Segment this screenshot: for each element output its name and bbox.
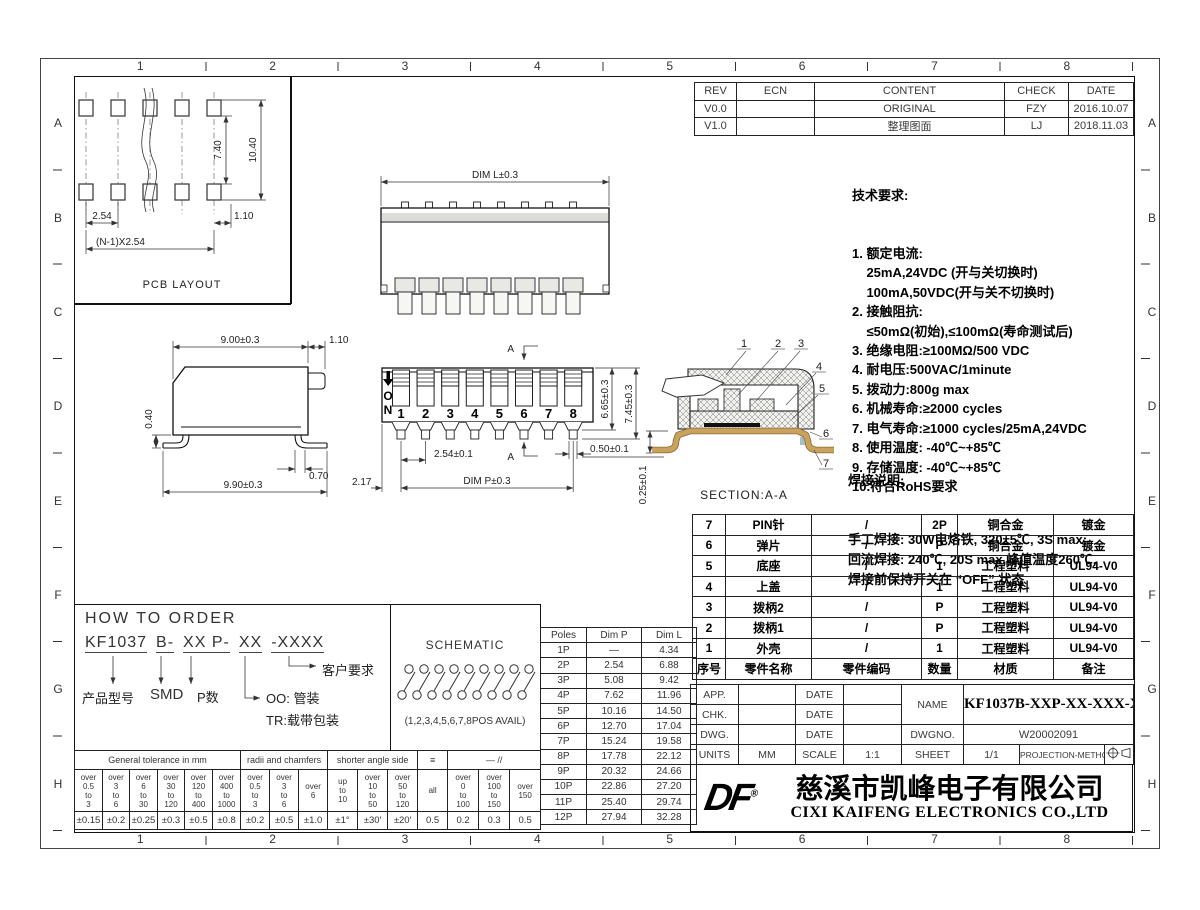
grid-row-label: C: [42, 265, 74, 359]
poles-header-row: PolesDim PDim L: [541, 628, 697, 643]
projection-label: PROJECTION-METHOD: [1020, 745, 1105, 765]
parallel-symbol: — //: [448, 751, 541, 770]
bom-note: UL94-V0: [1054, 597, 1134, 618]
revision-header-cell: DATE: [1069, 83, 1134, 101]
dim-0-25: 0.25±0.1: [638, 465, 649, 504]
dim-l-cell: 9.42: [642, 673, 697, 688]
grid-rows-left: ABCDEFGH: [42, 76, 74, 831]
dim-9-90: 9.90±0.3: [224, 480, 263, 491]
date-label: DATE: [796, 725, 844, 745]
grid-row-label: B: [42, 170, 74, 264]
bom-row: 2 拨柄1 / P 工程塑料 UL94-V0: [693, 617, 1134, 638]
company-block: DF® 慈溪市凯峰电子有限公司 CIXI KAIFENG ELECTRONICS…: [690, 764, 1133, 832]
bom-note: 镀金: [1054, 515, 1134, 536]
dim-0-70: 0.70: [309, 471, 329, 482]
bom-part-code: /: [812, 576, 922, 597]
dim-0-50: 0.50±0.1: [590, 444, 629, 455]
grid-row-label: C: [1136, 265, 1168, 359]
poles-cell: 8P: [541, 749, 587, 764]
tech-line: ≤50mΩ(初始),≤100mΩ(寿命测试后): [852, 322, 1136, 341]
svg-text:3: 3: [798, 338, 804, 350]
svg-text:7: 7: [545, 406, 552, 421]
grid-row-label: D: [42, 359, 74, 453]
grid-col-label: 8: [1001, 59, 1133, 75]
revision-header-cell: REV: [695, 83, 737, 101]
bom-index: 1: [693, 638, 726, 659]
section-slider: [724, 389, 740, 411]
tol-group-angle: shorter angle side: [328, 751, 418, 770]
revision-header-cell: CHECK: [1005, 83, 1069, 101]
dim-p-cell: 7.62: [587, 688, 642, 703]
section-marker-a-bottom: A: [507, 452, 514, 463]
bom-index: 4: [693, 576, 726, 597]
dim-l-cell: 4.34: [642, 643, 697, 658]
dim-p-cell: 27.94: [587, 810, 642, 825]
svg-text:6: 6: [823, 428, 829, 440]
bom-row: 7 PIN针 / 2P 铜合金 镀金: [693, 515, 1134, 536]
company-logo: DF®: [701, 777, 761, 820]
bom-part-code: /: [812, 515, 922, 536]
bom-header-cell: 备注: [1054, 659, 1134, 680]
check-cell: LJ: [1005, 118, 1069, 136]
svg-text:8: 8: [570, 406, 577, 421]
bom-part-code: /: [812, 617, 922, 638]
tol-value-cell: ±0.2: [103, 812, 130, 830]
dim-l-cell: 17.04: [642, 719, 697, 734]
scale-label: SCALE: [796, 745, 844, 765]
tolerance-group-row: General tolerance in mm radii and chamfe…: [75, 751, 541, 770]
grid-col-label: 1: [74, 832, 206, 848]
company-names: 慈溪市凯峰电子有限公司 CIXI KAIFENG ELECTRONICS CO.…: [767, 774, 1132, 822]
bom-header-cell: 序号: [693, 659, 726, 680]
bom-index: 7: [693, 515, 726, 536]
poles-cell: 4P: [541, 688, 587, 703]
dim-p-cell: 20.32: [587, 764, 642, 779]
bom-material: 工程塑料: [958, 556, 1054, 577]
units-label: UNITS: [691, 745, 739, 765]
tol-range-cell: over 400 to 1000: [213, 770, 241, 812]
tol-range-cell: over 3 to 6: [270, 770, 299, 812]
app-value: [739, 685, 796, 705]
bom-material: 工程塑料: [958, 638, 1054, 659]
chk-value: [739, 705, 796, 725]
tech-line: 6. 机械寿命:≥2000 cycles: [852, 399, 1136, 418]
tol-range-cell: over 120 to 400: [185, 770, 213, 812]
dim-2-54: 2.54: [92, 211, 112, 222]
grid-row-label: F: [42, 548, 74, 642]
tol-range-cell: over 50 to 120: [388, 770, 418, 812]
bom-rows: 7 PIN针 / 2P 铜合金 镀金 6 弹片 / P 铜合金 镀金 5 底座 …: [693, 515, 1134, 659]
top-view-stub-right: [603, 285, 609, 292]
poles-row: 7P 15.24 19.58: [541, 734, 697, 749]
svg-text:1: 1: [741, 338, 747, 350]
svg-text:2: 2: [422, 406, 429, 421]
revision-rows: V0.0 ORIGINAL FZY 2016.10.07 V1.0 整理图面 L…: [695, 100, 1134, 135]
revision-header-row: REVECNCONTENTCHECKDATE: [695, 83, 1134, 101]
part-name-value: KF1037B-XXP-XX-XXX-XXX: [964, 685, 1134, 725]
tech-line: 100mA,50VDC(开与关不切换时): [852, 283, 1136, 302]
grid-col-label: 4: [471, 59, 603, 75]
bom-note: UL94-V0: [1054, 617, 1134, 638]
scale-value: 1:1: [844, 745, 902, 765]
poles-row: 12P 27.94 32.28: [541, 810, 697, 825]
tol-value-cell: ±30′: [358, 812, 388, 830]
pcb-layout-view: 7.40 10.40 2.54 1.10 (N-1)X2.54 PCB LAYO…: [74, 76, 291, 304]
rev-cell: V0.0: [695, 100, 737, 118]
bom-qty: 1: [922, 556, 958, 577]
top-view-stub-left: [381, 285, 387, 292]
poles-cell: 12P: [541, 810, 587, 825]
bom-material: 工程塑料: [958, 617, 1054, 638]
front-view-pins: [392, 422, 582, 439]
revision-row: V1.0 整理图面 LJ 2018.11.03: [695, 118, 1134, 136]
dim-1-10-side: 1.10: [329, 335, 349, 346]
projection-method-icon: [1106, 746, 1132, 760]
poles-header-cell: Dim L: [642, 628, 697, 643]
app-label: APP.: [691, 685, 739, 705]
bom-note: 镀金: [1054, 535, 1134, 556]
dim-6-65: 6.65±0.3: [600, 379, 611, 418]
svg-text:5: 5: [819, 383, 825, 395]
flatness-symbol: ≡: [418, 751, 448, 770]
bom-part-code: /: [812, 535, 922, 556]
dim-l-cell: 27.20: [642, 779, 697, 794]
tol-value-cell: 0.5: [510, 812, 541, 830]
grid-col-label: 2: [206, 832, 338, 848]
bom-header-cell: 数量: [922, 659, 958, 680]
poles-row: 5P 10.16 14.50: [541, 703, 697, 718]
bom-part-code: /: [812, 556, 922, 577]
revision-header-cell: ECN: [737, 83, 815, 101]
pcb-layout-label: PCB LAYOUT: [143, 279, 222, 291]
bom-material: 铜合金: [958, 535, 1054, 556]
tol-range-cell: over 0.5 to 3: [241, 770, 270, 812]
tol-value-cell: 0.2: [448, 812, 479, 830]
dim-l-cell: 14.50: [642, 703, 697, 718]
grid-col-label: 5: [604, 59, 736, 75]
tech-line: 5. 拨动力:800g max: [852, 380, 1136, 399]
tol-range-cell: all: [418, 770, 448, 812]
poles-row: 6P 12.70 17.04: [541, 719, 697, 734]
top-view: DIM L±0.3: [365, 166, 627, 334]
bom-row: 1 外壳 / 1 工程塑料 UL94-V0: [693, 638, 1134, 659]
poles-row: 8P 17.78 22.12: [541, 749, 697, 764]
dim-l-cell: 19.58: [642, 734, 697, 749]
pcb-dimensions: 7.40 10.40 2.54 1.10 (N-1)X2.54: [86, 100, 266, 254]
top-view-tabs: [402, 202, 577, 208]
svg-text:4: 4: [471, 406, 479, 421]
grid-row-label: B: [1136, 170, 1168, 264]
bom-part-name: 弹片: [726, 535, 812, 556]
grid-col-label: 2: [206, 59, 338, 75]
poles-table: PolesDim PDim L 1P — 4.34 2P 2.54 6.88 3…: [540, 627, 697, 825]
tolerance-range-row: over 0.5 to 3over 3 to 6over 6 to 30over…: [75, 770, 541, 812]
grid-col-label: 3: [339, 59, 471, 75]
projection-symbol-cell: [1105, 745, 1134, 765]
bom-part-name: 上盖: [726, 576, 812, 597]
dim-l-cell: 22.12: [642, 749, 697, 764]
poles-header-cell: Poles: [541, 628, 587, 643]
check-cell: FZY: [1005, 100, 1069, 118]
tolerance-value-row: ±0.15±0.2±0.25±0.3±0.5±0.8±0.2±0.5±1.0±1…: [75, 812, 541, 830]
bom-index: 5: [693, 556, 726, 577]
dim-l-cell: 11.96: [642, 688, 697, 703]
grid-col-label: 6: [736, 59, 868, 75]
bom-qty: P: [922, 535, 958, 556]
front-view-body: [382, 368, 593, 422]
bom-qty: P: [922, 597, 958, 618]
dim-p-cell: —: [587, 643, 642, 658]
date-label: DATE: [796, 705, 844, 725]
poles-cell: 7P: [541, 734, 587, 749]
date-cell: 2018.11.03: [1069, 118, 1134, 136]
name-label: NAME: [902, 685, 964, 725]
dim-2-17: 2.17: [352, 477, 372, 488]
sheet-label: SHEET: [902, 745, 964, 765]
order-label-pnum: P数: [197, 687, 219, 706]
grid-row-label: D: [1136, 359, 1168, 453]
bom-header-cell: 零件名称: [726, 659, 812, 680]
registered-mark: ®: [750, 788, 759, 799]
dim-l-cell: 29.74: [642, 795, 697, 810]
bom-material: 铜合金: [958, 515, 1054, 536]
engineering-drawing-sheet: 12345678 12345678 ABCDEFGH ABCDEFGH 7.40…: [0, 0, 1200, 910]
poles-cell: 11P: [541, 795, 587, 810]
bom-table: 7 PIN针 / 2P 铜合金 镀金 6 弹片 / P 铜合金 镀金 5 底座 …: [692, 514, 1134, 680]
company-logo-text: DF: [701, 777, 753, 819]
dim-p-cell: 5.08: [587, 673, 642, 688]
svg-text:5: 5: [496, 406, 503, 421]
grid-col-label: 4: [471, 832, 603, 848]
grid-row-label: G: [42, 642, 74, 736]
front-view: O N 1 2 3 4 5 6 7 8 A A 6.65±0.3 7.45±0.…: [350, 338, 680, 510]
section-block-left: [698, 399, 718, 411]
bom-part-code: /: [812, 638, 922, 659]
bom-part-name: 底座: [726, 556, 812, 577]
units-value: MM: [739, 745, 796, 765]
dim-l-cell: 32.28: [642, 810, 697, 825]
tech-title: 技术要求:: [852, 186, 1136, 205]
tol-range-cell: over 30 to 120: [158, 770, 185, 812]
revision-header-cell: CONTENT: [815, 83, 1005, 101]
svg-text:4: 4: [816, 361, 822, 373]
dim-2-54-pitch: 2.54±0.1: [434, 449, 473, 460]
dim-n-pitch: (N-1)X2.54: [96, 237, 145, 248]
bom-index: 2: [693, 617, 726, 638]
tol-range-cell: over 0.5 to 3: [75, 770, 103, 812]
dim-p-cell: 22.86: [587, 779, 642, 794]
date-label: DATE: [796, 685, 844, 705]
tol-value-cell: ±1.0: [299, 812, 328, 830]
grid-row-label: E: [1136, 454, 1168, 548]
section-view: 1 2 3 4 5 6 7 0.25±0.1 SECTION:A-A: [638, 333, 850, 519]
top-view-pins: [395, 278, 583, 314]
tol-range-cell: over 0 to 100: [448, 770, 479, 812]
bom-header-cell: 零件编码: [812, 659, 922, 680]
dim-9-00: 9.00±0.3: [221, 335, 260, 346]
title-block: APP. DATE NAME KF1037B-XXP-XX-XXX-XXX CH…: [690, 684, 1134, 765]
tol-value-cell: ±1°: [328, 812, 358, 830]
grid-row-label: F: [1136, 548, 1168, 642]
section-contact: [704, 423, 760, 427]
tol-value-cell: ±0.15: [75, 812, 103, 830]
bom-qty: 2P: [922, 515, 958, 536]
tol-range-cell: over 100 to 150: [479, 770, 510, 812]
dim-p-cell: 2.54: [587, 658, 642, 673]
grid-col-label: 8: [1001, 832, 1133, 848]
bom-row: 5 底座 / 1 工程塑料 UL94-V0: [693, 556, 1134, 577]
tech-line: 4. 耐电压:500VAC/1minute: [852, 360, 1136, 379]
front-switch-numbers: 1 2 3 4 5 6 7 8: [397, 406, 576, 421]
order-label-tube: OO: 管装: [266, 688, 319, 707]
ecn-cell: [737, 118, 815, 136]
bom-part-code: /: [812, 597, 922, 618]
tech-line: 25mA,24VDC (开与关切换时): [852, 263, 1136, 282]
chk-label: CHK.: [691, 705, 739, 725]
poles-row: 1P — 4.34: [541, 643, 697, 658]
grid-row-label: E: [42, 454, 74, 548]
content-cell: 整理图面: [815, 118, 1005, 136]
order-label-smd: SMD: [150, 686, 183, 703]
chk-date-value: [844, 705, 902, 725]
grid-col-label: 5: [604, 832, 736, 848]
poles-cell: 9P: [541, 764, 587, 779]
dwg-date-value: [844, 725, 902, 745]
grid-row-label: A: [1136, 76, 1168, 170]
bom-note: UL94-V0: [1054, 638, 1134, 659]
grid-cols-bottom: 12345678: [74, 832, 1133, 848]
poles-header-cell: Dim P: [587, 628, 642, 643]
tol-value-cell: 0.5: [418, 812, 448, 830]
poles-row: 2P 2.54 6.88: [541, 658, 697, 673]
poles-cell: 3P: [541, 673, 587, 688]
dim-l: DIM L±0.3: [472, 170, 518, 181]
bom-index: 6: [693, 535, 726, 556]
svg-text:3: 3: [447, 406, 454, 421]
dim-p-cell: 17.78: [587, 749, 642, 764]
poles-row: 9P 20.32 24.66: [541, 764, 697, 779]
grid-col-label: 7: [868, 59, 1000, 75]
dim-0-40: 0.40: [144, 409, 155, 429]
solder-title: 焊接说明:: [848, 471, 1138, 491]
svg-text:1: 1: [397, 406, 404, 421]
dim-10-40: 10.40: [248, 137, 259, 162]
dim-l-cell: 24.66: [642, 764, 697, 779]
tol-value-cell: ±20′: [388, 812, 418, 830]
dim-p-cell: 15.24: [587, 734, 642, 749]
order-label-tr: TR:载带包装: [266, 710, 339, 729]
dwg-label: DWG.: [691, 725, 739, 745]
grid-col-label: 6: [736, 832, 868, 848]
bom-header-row: 序号零件名称零件编码数量材质备注: [693, 659, 1134, 680]
sheet-value: 1/1: [964, 745, 1020, 765]
tol-range-cell: over 10 to 50: [358, 770, 388, 812]
rev-cell: V1.0: [695, 118, 737, 136]
bom-row: 6 弹片 / P 铜合金 镀金: [693, 535, 1134, 556]
grid-col-label: 1: [74, 59, 206, 75]
poles-cell: 2P: [541, 658, 587, 673]
poles-row: 10P 22.86 27.20: [541, 779, 697, 794]
bom-part-name: 外壳: [726, 638, 812, 659]
revision-table: REVECNCONTENTCHECKDATE V0.0 ORIGINAL FZY…: [694, 82, 1134, 136]
bom-part-name: 拨柄1: [726, 617, 812, 638]
bom-note: UL94-V0: [1054, 556, 1134, 577]
tol-value-cell: ±0.3: [158, 812, 185, 830]
dim-p-cell: 10.16: [587, 703, 642, 718]
on-down-arrow-icon: [383, 371, 394, 386]
tol-range-cell: up to 10: [328, 770, 358, 812]
top-view-band: [382, 213, 608, 221]
tol-value-cell: ±0.25: [130, 812, 158, 830]
schematic-title: SCHEMATIC: [390, 638, 540, 652]
dim-1-10: 1.10: [234, 211, 254, 222]
tol-group-general: General tolerance in mm: [75, 751, 241, 770]
poles-cell: 1P: [541, 643, 587, 658]
bom-row: 4 上盖 / 1 工程塑料 UL94-V0: [693, 576, 1134, 597]
dim-p-cell: 12.70: [587, 719, 642, 734]
poles-row: 3P 5.08 9.42: [541, 673, 697, 688]
bom-index: 3: [693, 597, 726, 618]
poles-row: 11P 25.40 29.74: [541, 795, 697, 810]
bom-part-name: 拨柄2: [726, 597, 812, 618]
front-view-slots: [393, 370, 582, 406]
dwgno-value: W20002091: [964, 725, 1134, 745]
svg-text:2: 2: [775, 338, 781, 350]
tol-range-cell: over 6 to 30: [130, 770, 158, 812]
on-letter-n: N: [384, 403, 393, 417]
bom-note: UL94-V0: [1054, 576, 1134, 597]
bom-material: 工程塑料: [958, 597, 1054, 618]
grid-cols-top: 12345678: [74, 59, 1133, 75]
bom-part-name: PIN针: [726, 515, 812, 536]
content-cell: ORIGINAL: [815, 100, 1005, 118]
ecn-cell: [737, 100, 815, 118]
poles-row: 4P 7.62 11.96: [541, 688, 697, 703]
svg-text:6: 6: [520, 406, 527, 421]
grid-col-label: 7: [868, 832, 1000, 848]
dim-7-40: 7.40: [213, 140, 224, 160]
bom-row: 3 拨柄2 / P 工程塑料 UL94-V0: [693, 597, 1134, 618]
order-label-model: 产品型号: [82, 688, 134, 707]
poles-cell: 5P: [541, 703, 587, 718]
company-name-en: CIXI KAIFENG ELECTRONICS CO.,LTD: [767, 804, 1132, 822]
date-cell: 2016.10.07: [1069, 100, 1134, 118]
tech-line: 1. 额定电流:: [852, 244, 1136, 263]
dwg-value: [739, 725, 796, 745]
side-view-body: [173, 367, 308, 435]
bom-material: 工程塑料: [958, 576, 1054, 597]
tolerance-table: General tolerance in mm radii and chamfe…: [74, 750, 541, 830]
app-date-value: [844, 685, 902, 705]
bom-qty: 1: [922, 638, 958, 659]
grid-row-label: H: [42, 737, 74, 831]
bom-qty: 1: [922, 576, 958, 597]
dim-7-45: 7.45±0.3: [624, 384, 635, 423]
tol-value-cell: ±0.5: [185, 812, 213, 830]
section-label: SECTION:A-A: [700, 488, 788, 502]
bom-header-cell: 材质: [958, 659, 1054, 680]
order-label-custom: 客户要求: [322, 660, 374, 679]
bom-qty: P: [922, 617, 958, 638]
side-view: 9.00±0.3 1.10 0.40 0.70 9.90±0.3: [143, 331, 360, 508]
tol-group-radii: radii and chamfers: [241, 751, 328, 770]
schematic-symbols: [396, 660, 538, 710]
tol-range-cell: over 6: [299, 770, 328, 812]
tol-range-cell: over 150: [510, 770, 541, 812]
tech-line: 3. 绝缘电阻:≥100MΩ/500 VDC: [852, 341, 1136, 360]
dim-p: DIM P±0.3: [463, 476, 511, 487]
dwgno-label: DWGNO.: [902, 725, 964, 745]
